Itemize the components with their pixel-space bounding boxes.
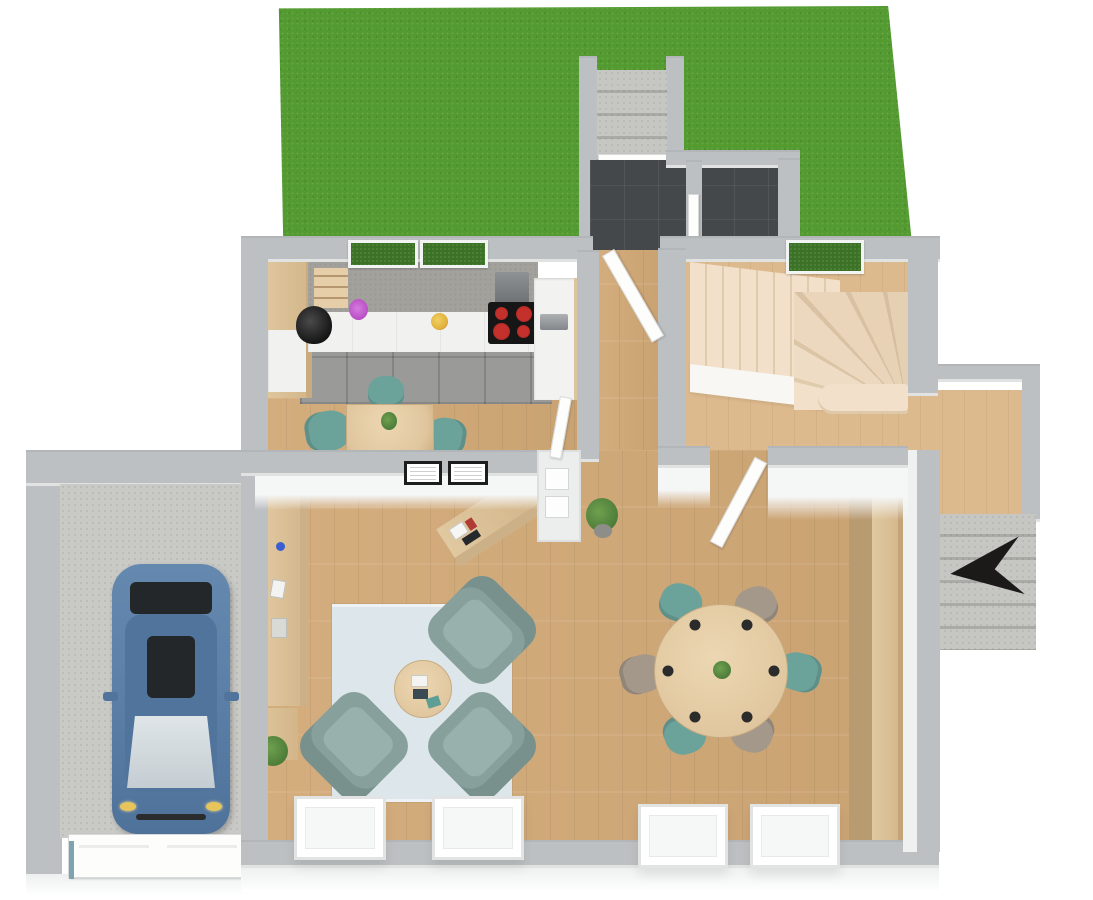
hall-stair-wall: [658, 248, 686, 450]
place-setting: [742, 711, 753, 722]
car-headlight-right: [206, 802, 222, 811]
kitchen-living-wall-face: [255, 476, 541, 510]
window-sill: [761, 815, 829, 857]
place-setting: [689, 620, 700, 631]
garage-door-panel-line: [79, 845, 149, 848]
garage-door-edge-teal: [69, 841, 74, 879]
east-wall-lower: [903, 450, 940, 852]
kitchen-window: [420, 240, 488, 268]
dining-table-plant: [713, 661, 731, 679]
dining-table: [654, 604, 788, 738]
south-window: [294, 796, 386, 860]
flower-vase-purple: [349, 299, 368, 320]
place-setting: [689, 711, 700, 722]
south-window: [432, 796, 524, 860]
car-windshield: [127, 716, 215, 788]
decor-blue-ball: [276, 542, 285, 551]
place-setting: [663, 666, 674, 677]
garage-west-wall: [26, 450, 62, 880]
kitchen-window: [348, 240, 418, 268]
garage-north-wall: [26, 450, 248, 486]
stair-south-wall-east: [768, 446, 908, 468]
kitchen-tile-strip: [300, 350, 552, 404]
porch-east-wall: [1022, 364, 1040, 522]
range-hood: [495, 272, 529, 304]
entry-steps-north: [597, 70, 667, 162]
west-wall: [241, 236, 268, 856]
coffee-table-book-teal: [426, 695, 441, 709]
wall-picture-frame: [404, 461, 442, 485]
sideboard: [264, 476, 308, 706]
south-window: [638, 804, 728, 868]
stair-south-wall-west-face: [658, 468, 710, 508]
stub-shelf-square: [545, 496, 569, 518]
east-wall-upper: [908, 236, 938, 396]
decor-box: [271, 618, 287, 638]
bookshelf-top-face: [872, 478, 904, 842]
frame-art: [454, 466, 482, 480]
kitchen-living-wall: [241, 450, 541, 476]
window-sill: [305, 807, 375, 849]
wall-picture-frame: [448, 461, 488, 485]
frame-art: [410, 466, 436, 480]
coffee-table-book-white: [411, 675, 428, 687]
hallway-plant-pot: [594, 524, 612, 538]
window-sill: [443, 807, 513, 849]
burner: [495, 307, 508, 320]
car-mirror-left: [103, 692, 118, 701]
car-headlight-left: [120, 802, 136, 811]
stair-window: [786, 240, 864, 274]
car-mirror-right: [224, 692, 239, 701]
burner: [517, 325, 530, 338]
stub-shelf-square: [545, 468, 569, 490]
car-sunroof: [147, 636, 195, 698]
garage-door: [68, 834, 246, 878]
bookshelf-boxes: [849, 478, 873, 842]
south-wall-outer-face: [241, 868, 939, 892]
cooktop: [488, 302, 538, 344]
garage-door-panel-line: [167, 845, 237, 848]
kitchen-sink: [296, 306, 332, 344]
fruit-bowl-yellow: [431, 313, 448, 330]
kitchen-table-plant: [381, 412, 397, 430]
kitchen-open-shelf: [314, 268, 348, 308]
car: [112, 564, 230, 834]
coffee-table-book-dark: [413, 689, 428, 699]
stair-bottom-step: [818, 384, 908, 414]
south-window: [750, 804, 840, 868]
armchair-seat: [438, 702, 517, 781]
burner: [493, 323, 510, 340]
coffee-table: [394, 660, 452, 718]
place-setting: [768, 666, 779, 677]
stair-south-wall-west: [658, 446, 710, 468]
oven-front: [540, 314, 568, 330]
place-setting: [742, 620, 753, 631]
floor-plan-render: [0, 0, 1093, 900]
hall-end-wall-stub: [537, 450, 581, 542]
car-grille: [136, 814, 206, 820]
stair-south-wall-east-face: [768, 468, 908, 520]
window-sill: [649, 815, 717, 857]
car-rear-window: [130, 582, 212, 614]
kitchen-hall-wall: [577, 250, 599, 462]
burner: [516, 306, 532, 322]
decor-book: [270, 579, 287, 599]
